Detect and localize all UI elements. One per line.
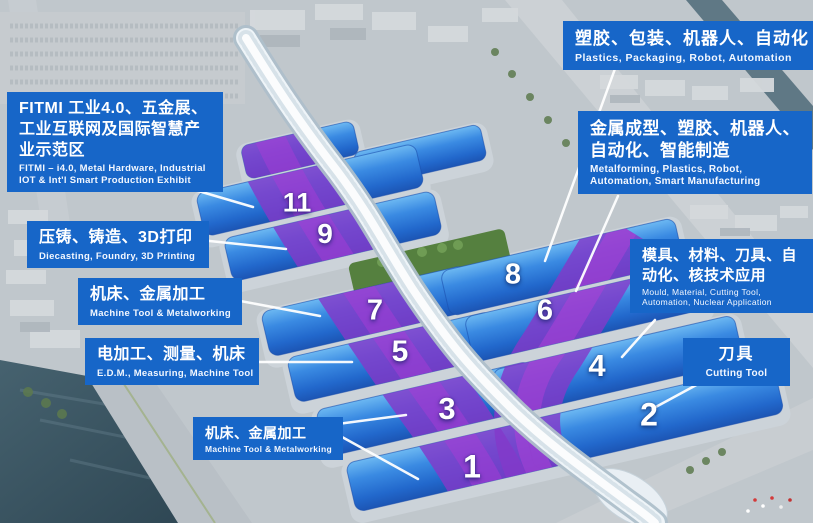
label-fitmi-subtitle: FITMI – i4.0, Metal Hardware, Industrial… <box>19 163 211 185</box>
label-mould-subtitle: Mould, Material, Cutting Tool, Automatio… <box>642 287 801 307</box>
hall-number-1: 1 <box>463 449 481 486</box>
hall-number-8: 8 <box>505 259 521 292</box>
label-plastics-subtitle: Plastics, Packaging, Robot, Automation <box>575 52 801 64</box>
label-metalforming-subtitle: Metalforming, Plastics, Robot, Automatio… <box>590 164 800 188</box>
label-metalforming: 金属成型、塑胶、机器人、自动化、智能制造 Metalforming, Plast… <box>578 111 812 194</box>
label-edm-title: 电加工、测量、机床 <box>97 345 247 366</box>
label-fitmi-zone: FITMI 工业4.0、五金展、工业互联网及国际智慧产业示范区 FITMI – … <box>7 92 223 192</box>
hall-number-7: 7 <box>367 295 383 328</box>
hall-number-4: 4 <box>588 348 605 384</box>
label-mould-title: 模具、材料、刀具、自动化、核技术应用 <box>642 246 801 285</box>
hall-number-11: 11 <box>283 188 312 219</box>
label-machine-tool-upper-title: 机床、金属加工 <box>90 285 230 306</box>
label-diecasting-subtitle: Diecasting, Foundry, 3D Printing <box>39 251 197 262</box>
label-machine-tool-upper: 机床、金属加工 Machine Tool & Metalworking <box>78 278 242 325</box>
hall-number-5: 5 <box>392 335 409 369</box>
label-plastics-packaging: 塑胶、包装、机器人、自动化 Plastics, Packaging, Robot… <box>563 21 813 70</box>
label-fitmi-title: FITMI 工业4.0、五金展、工业互联网及国际智慧产业示范区 <box>19 99 211 161</box>
hall-number-6: 6 <box>537 295 553 328</box>
hall-number-9: 9 <box>317 218 333 250</box>
label-machine-tool-upper-subtitle: Machine Tool & Metalworking <box>90 308 230 319</box>
label-cutting-tool: 刀具 Cutting Tool <box>683 338 790 386</box>
label-metalforming-title: 金属成型、塑胶、机器人、自动化、智能制造 <box>590 118 800 162</box>
label-diecasting-title: 压铸、铸造、3D打印 <box>39 228 197 249</box>
hall-number-3: 3 <box>438 391 455 427</box>
label-cutting-tool-title: 刀具 <box>695 345 778 366</box>
label-edm-subtitle: E.D.M., Measuring, Machine Tool <box>97 368 247 379</box>
venue-map: 11 9 8 7 6 5 4 3 2 1 FITMI 工业4.0、五金展、工业互… <box>0 0 813 523</box>
label-edm: 电加工、测量、机床 E.D.M., Measuring, Machine Too… <box>85 338 259 385</box>
label-cutting-tool-subtitle: Cutting Tool <box>695 368 778 380</box>
label-diecasting: 压铸、铸造、3D打印 Diecasting, Foundry, 3D Print… <box>27 221 209 268</box>
label-plastics-title: 塑胶、包装、机器人、自动化 <box>575 28 801 50</box>
label-machine-tool-lower: 机床、金属加工 Machine Tool & Metalworking <box>193 417 343 460</box>
label-mould: 模具、材料、刀具、自动化、核技术应用 Mould, Material, Cutt… <box>630 239 813 313</box>
label-machine-tool-lower-subtitle: Machine Tool & Metalworking <box>205 444 331 454</box>
label-machine-tool-lower-title: 机床、金属加工 <box>205 424 331 442</box>
hall-number-2: 2 <box>640 397 658 434</box>
